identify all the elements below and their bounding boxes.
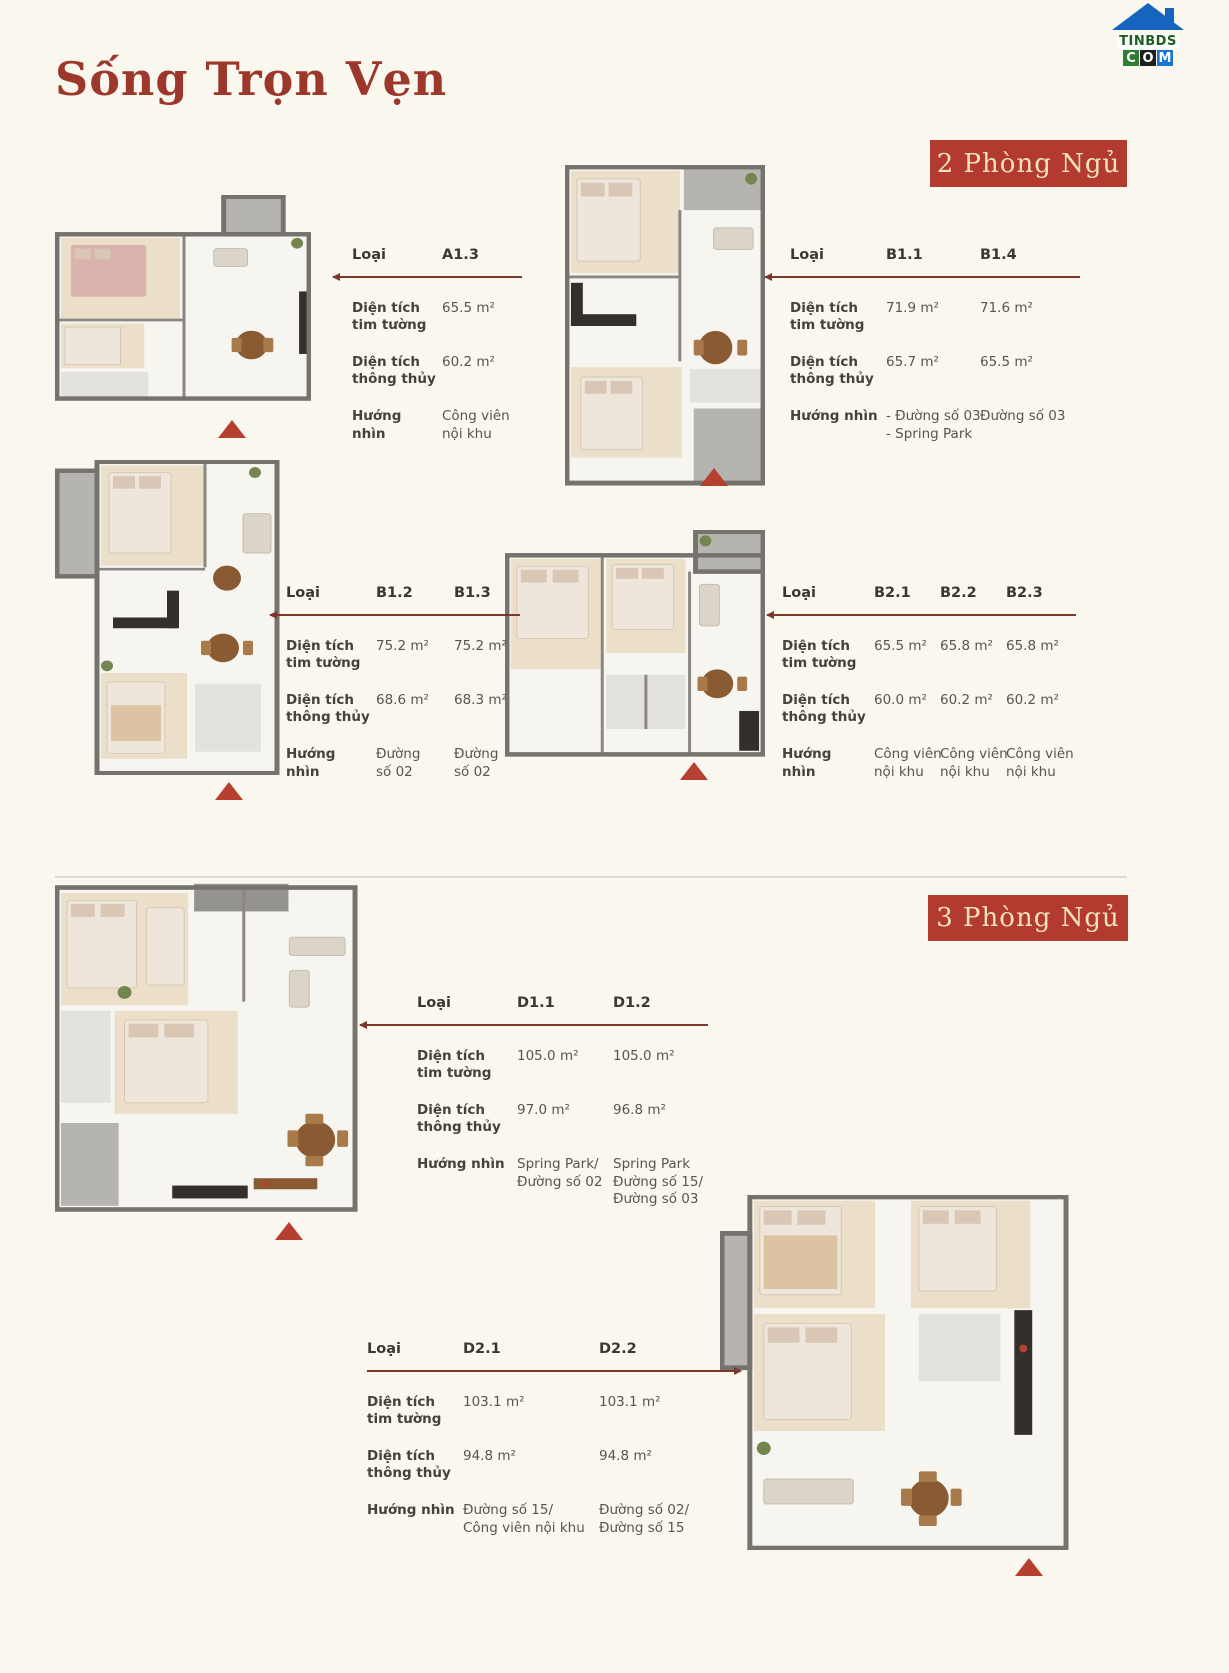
spec-value-gross: 105.0 m² xyxy=(517,1048,613,1083)
spec-row-type: LoạiA1.3 xyxy=(352,246,522,265)
spec-value-type: D2.2 xyxy=(599,1340,709,1359)
spec-label-gross: Diện tích tim tường xyxy=(417,1048,517,1083)
spec-row-view: Hướng nhìnĐường số 02Đường số 02 xyxy=(286,746,520,781)
spec-value-net: 68.6 m² xyxy=(376,692,454,727)
table-connector-line xyxy=(767,614,1076,616)
spec-value-net: 97.0 m² xyxy=(517,1102,613,1137)
spec-row-type: LoạiB2.1B2.2B2.3 xyxy=(782,584,1076,603)
spec-row-net: Diện tích thông thủy97.0 m²96.8 m² xyxy=(417,1102,708,1137)
spec-row-gross: Diện tích tim tường65.5 m² xyxy=(352,300,522,335)
spec-label-gross: Diện tích tim tường xyxy=(367,1394,463,1429)
spec-value-net: 94.8 m² xyxy=(463,1448,599,1483)
spec-value-type: B1.2 xyxy=(376,584,454,603)
spec-value-net: 65.7 m² xyxy=(886,354,980,389)
spec-table-b1-1-b1-4: LoạiB1.1B1.4Diện tích tim tường71.9 m²71… xyxy=(790,246,1080,462)
spec-label-view: Hướng nhìn xyxy=(790,408,886,443)
spec-label-net: Diện tích thông thủy xyxy=(352,354,442,389)
spec-label-view: Hướng nhìn xyxy=(367,1502,463,1537)
spec-label-type: Loại xyxy=(286,584,376,603)
spec-value-gross: 103.1 m² xyxy=(463,1394,599,1429)
spec-row-view: Hướng nhìnSpring Park/ Đường số 02Spring… xyxy=(417,1156,708,1209)
spec-label-gross: Diện tích tim tường xyxy=(286,638,376,673)
spec-value-view: Đường số 02 xyxy=(454,746,520,781)
spec-value-net: 96.8 m² xyxy=(613,1102,708,1137)
spec-row-net: Diện tích thông thủy94.8 m²94.8 m² xyxy=(367,1448,709,1483)
spec-value-gross: 65.5 m² xyxy=(874,638,940,673)
spec-value-view: Đường số 15/ Công viên nội khu xyxy=(463,1502,599,1537)
spec-value-net: 60.2 m² xyxy=(442,354,522,389)
spec-label-gross: Diện tích tim tường xyxy=(782,638,874,673)
section-banner-3-bedroom: 3 Phòng Ngủ xyxy=(928,895,1128,941)
floor-plan-b2 xyxy=(505,530,765,758)
spec-value-type: B1.4 xyxy=(980,246,1080,265)
spec-value-type: B2.3 xyxy=(1006,584,1076,603)
house-roof-icon xyxy=(1112,3,1184,30)
spec-value-view: Công viên nội khu xyxy=(940,746,1006,781)
logo-text-bottom: C O M xyxy=(1112,50,1184,66)
spec-label-type: Loại xyxy=(352,246,442,265)
spec-row-view: Hướng nhìnCông viên nội khuCông viên nội… xyxy=(782,746,1076,781)
spec-row-gross: Diện tích tim tường71.9 m²71.6 m² xyxy=(790,300,1080,335)
spec-row-net: Diện tích thông thủy68.6 m²68.3 m² xyxy=(286,692,520,727)
table-connector-line xyxy=(765,276,1080,278)
spec-row-type: LoạiB1.1B1.4 xyxy=(790,246,1080,265)
logo-letter-c: C xyxy=(1123,50,1139,66)
spec-value-gross: 65.5 m² xyxy=(442,300,522,335)
spec-value-net: 60.2 m² xyxy=(940,692,1006,727)
spec-label-view: Hướng nhìn xyxy=(352,408,442,443)
spec-row-net: Diện tích thông thủy60.2 m² xyxy=(352,354,522,389)
spec-label-gross: Diện tích tim tường xyxy=(352,300,442,335)
north-arrow xyxy=(218,420,246,438)
spec-value-net: 60.0 m² xyxy=(874,692,940,727)
spec-value-view: Spring Park Đường số 15/ Đường số 03 xyxy=(613,1156,708,1209)
spec-label-view: Hướng nhìn xyxy=(782,746,874,781)
spec-value-type: B1.1 xyxy=(886,246,980,265)
spec-value-gross: 65.8 m² xyxy=(1006,638,1076,673)
spec-row-type: LoạiB1.2B1.3 xyxy=(286,584,520,603)
north-arrow xyxy=(700,468,728,486)
north-arrow xyxy=(275,1222,303,1240)
logo-text-top: TINBDS xyxy=(1117,34,1179,49)
spec-value-net: 68.3 m² xyxy=(454,692,520,727)
spec-label-type: Loại xyxy=(417,994,517,1013)
table-connector-line xyxy=(360,1024,708,1026)
spec-label-net: Diện tích thông thủy xyxy=(417,1102,517,1137)
spec-value-type: B1.3 xyxy=(454,584,520,603)
spec-label-net: Diện tích thông thủy xyxy=(286,692,376,727)
spec-value-view: Công viên nội khu xyxy=(1006,746,1076,781)
spec-row-type: LoạiD2.1D2.2 xyxy=(367,1340,709,1359)
floor-plan-d1 xyxy=(55,882,360,1215)
spec-value-type: D2.1 xyxy=(463,1340,599,1359)
spec-row-type: LoạiD1.1D1.2 xyxy=(417,994,708,1013)
page-title: Sống Trọn Vẹn xyxy=(55,52,447,106)
north-arrow xyxy=(1015,1558,1043,1576)
spec-table-a1-3: LoạiA1.3Diện tích tim tường65.5 m²Diện t… xyxy=(352,246,522,462)
spec-value-net: 60.2 m² xyxy=(1006,692,1076,727)
table-connector-line xyxy=(333,276,522,278)
spec-table-b2: LoạiB2.1B2.2B2.3Diện tích tim tường65.5 … xyxy=(782,584,1076,800)
spec-value-type: B2.1 xyxy=(874,584,940,603)
spec-row-net: Diện tích thông thủy60.0 m²60.2 m²60.2 m… xyxy=(782,692,1076,727)
north-arrow xyxy=(215,782,243,800)
spec-row-view: Hướng nhìnCông viên nội khu xyxy=(352,408,522,443)
spec-row-gross: Diện tích tim tường105.0 m²105.0 m² xyxy=(417,1048,708,1083)
spec-value-net: 65.5 m² xyxy=(980,354,1080,389)
floor-plan-d2 xyxy=(720,1195,1070,1550)
brochure-page: Sống Trọn Vẹn TINBDS C O M 2 Phòng Ngủ 3… xyxy=(0,0,1229,1673)
spec-row-view: Hướng nhìn- Đường số 03 - Spring ParkĐườ… xyxy=(790,408,1080,443)
section-divider xyxy=(55,876,1127,878)
spec-table-d2: LoạiD2.1D2.2Diện tích tim tường103.1 m²1… xyxy=(367,1340,709,1556)
spec-label-net: Diện tích thông thủy xyxy=(782,692,874,727)
spec-value-view: Đường số 02/ Đường số 15 xyxy=(599,1502,709,1537)
spec-value-type: A1.3 xyxy=(442,246,522,265)
spec-row-net: Diện tích thông thủy65.7 m²65.5 m² xyxy=(790,354,1080,389)
spec-value-gross: 105.0 m² xyxy=(613,1048,708,1083)
spec-table-b1-2-b1-3: LoạiB1.2B1.3Diện tích tim tường75.2 m²75… xyxy=(286,584,520,800)
spec-table-d1: LoạiD1.1D1.2Diện tích tim tường105.0 m²1… xyxy=(417,994,708,1228)
spec-value-gross: 75.2 m² xyxy=(454,638,520,673)
spec-row-gross: Diện tích tim tường65.5 m²65.8 m²65.8 m² xyxy=(782,638,1076,673)
spec-label-type: Loại xyxy=(367,1340,463,1359)
section-banner-2-bedroom: 2 Phòng Ngủ xyxy=(930,140,1127,187)
table-connector-line xyxy=(270,614,520,616)
spec-value-type: D1.2 xyxy=(613,994,708,1013)
spec-label-type: Loại xyxy=(790,246,886,265)
spec-label-net: Diện tích thông thủy xyxy=(790,354,886,389)
spec-value-gross: 75.2 m² xyxy=(376,638,454,673)
spec-value-net: 94.8 m² xyxy=(599,1448,709,1483)
spec-value-view: - Đường số 03 - Spring Park xyxy=(886,408,980,443)
spec-label-gross: Diện tích tim tường xyxy=(790,300,886,335)
spec-value-view: Công viên nội khu xyxy=(442,408,522,443)
logo-letter-o: O xyxy=(1140,50,1156,66)
spec-value-gross: 71.6 m² xyxy=(980,300,1080,335)
spec-value-gross: 71.9 m² xyxy=(886,300,980,335)
spec-value-gross: 103.1 m² xyxy=(599,1394,709,1429)
spec-label-view: Hướng nhìn xyxy=(417,1156,517,1209)
floor-plan-b1-2 xyxy=(55,460,280,775)
spec-label-type: Loại xyxy=(782,584,874,603)
spec-row-gross: Diện tích tim tường103.1 m²103.1 m² xyxy=(367,1394,709,1429)
spec-label-net: Diện tích thông thủy xyxy=(367,1448,463,1483)
spec-value-view: Đường số 02 xyxy=(376,746,454,781)
spec-value-type: D1.1 xyxy=(517,994,613,1013)
table-connector-line xyxy=(367,1370,741,1372)
spec-row-view: Hướng nhìnĐường số 15/ Công viên nội khu… xyxy=(367,1502,709,1537)
floor-plan-a1-3 xyxy=(55,195,311,420)
spec-value-view: Spring Park/ Đường số 02 xyxy=(517,1156,613,1209)
spec-value-type: B2.2 xyxy=(940,584,1006,603)
north-arrow xyxy=(680,762,708,780)
tinbds-logo: TINBDS C O M xyxy=(1112,3,1184,66)
spec-label-view: Hướng nhìn xyxy=(286,746,376,781)
logo-letter-m: M xyxy=(1157,50,1173,66)
spec-value-view: Đường số 03 xyxy=(980,408,1080,443)
spec-value-gross: 65.8 m² xyxy=(940,638,1006,673)
spec-row-gross: Diện tích tim tường75.2 m²75.2 m² xyxy=(286,638,520,673)
floor-plan-b1-1 xyxy=(565,165,765,487)
spec-value-view: Công viên nội khu xyxy=(874,746,940,781)
